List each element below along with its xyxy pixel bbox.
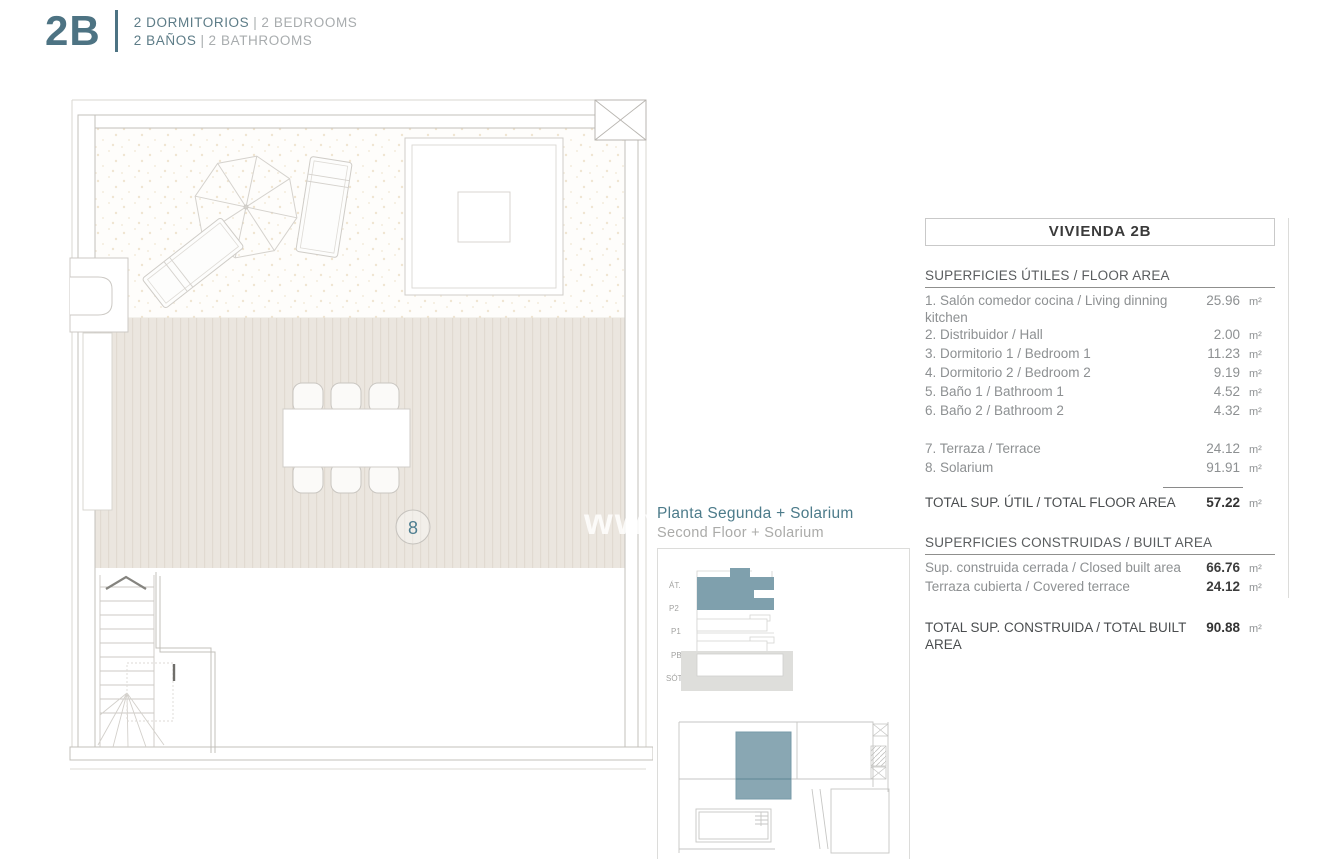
row-value: 4.32 bbox=[1188, 402, 1240, 419]
table-row: Sup. construida cerrada / Closed built a… bbox=[925, 559, 1275, 578]
row-value: 66.76 bbox=[1188, 559, 1240, 576]
building-section-diagram: ÁT. P2 P1 PB SÓT. bbox=[664, 567, 814, 702]
header-lines: 2 DORMITORIOS|2 BEDROOMS 2 BAÑOS|2 BATHR… bbox=[134, 15, 358, 48]
brochure-page: 2B 2 DORMITORIOS|2 BEDROOMS 2 BAÑOS|2 BA… bbox=[0, 0, 1320, 859]
top-wall bbox=[78, 115, 598, 128]
floor-label-atico: ÁT. bbox=[669, 581, 681, 590]
row-label: 3. Dormitorio 1 / Bedroom 1 bbox=[925, 345, 1188, 362]
floor-label-p1: P1 bbox=[671, 627, 681, 636]
total-built-row: TOTAL SUP. CONSTRUIDA / TOTAL BUILT AREA… bbox=[925, 619, 1275, 653]
lower-floors bbox=[697, 615, 774, 653]
bathrooms-line: 2 BAÑOS|2 BATHROOMS bbox=[134, 33, 358, 48]
table-row: 3. Dormitorio 1 / Bedroom 111.23m² bbox=[925, 345, 1275, 364]
row-unit: m² bbox=[1240, 294, 1275, 311]
bedrooms-en: 2 BEDROOMS bbox=[261, 15, 357, 30]
table-side-rule bbox=[1288, 218, 1289, 598]
built-area-header: SUPERFICIES CONSTRUIDAS / BUILT AREA bbox=[925, 535, 1275, 555]
row-unit: m² bbox=[1240, 404, 1275, 421]
row-label: 7. Terraza / Terrace bbox=[925, 440, 1188, 457]
bathrooms-es: 2 BAÑOS bbox=[134, 33, 197, 48]
floor-area-header: SUPERFICIES ÚTILES / FLOOR AREA bbox=[925, 268, 1275, 288]
separator: | bbox=[249, 15, 261, 30]
area-table: VIVIENDA 2B SUPERFICIES ÚTILES / FLOOR A… bbox=[925, 218, 1275, 653]
sink-fixture bbox=[70, 258, 128, 332]
row-label: 2. Distribuidor / Hall bbox=[925, 326, 1188, 343]
location-title-es: Planta Segunda + Solarium bbox=[657, 505, 854, 523]
row-unit: m² bbox=[1240, 347, 1275, 364]
header-divider bbox=[115, 10, 118, 52]
total-label: TOTAL SUP. CONSTRUIDA / TOTAL BUILT AREA bbox=[925, 619, 1188, 653]
total-label: TOTAL SUP. ÚTIL / TOTAL FLOOR AREA bbox=[925, 494, 1188, 511]
row-label: 1. Salón comedor cocina / Living dinning… bbox=[925, 292, 1188, 326]
total-value: 57.22 bbox=[1188, 494, 1240, 511]
row-value: 24.12 bbox=[1188, 578, 1240, 595]
table-row: 1. Salón comedor cocina / Living dinning… bbox=[925, 292, 1275, 326]
total-unit: m² bbox=[1240, 621, 1275, 638]
row-value: 91.91 bbox=[1188, 459, 1240, 476]
unit-type-header: 2B 2 DORMITORIOS|2 BEDROOMS 2 BAÑOS|2 BA… bbox=[45, 10, 357, 52]
adjacent-rooms bbox=[812, 789, 889, 853]
row-value: 11.23 bbox=[1188, 345, 1240, 362]
right-wall bbox=[625, 140, 638, 747]
table-row: 2. Distribuidor / Hall2.00m² bbox=[925, 326, 1275, 345]
room-number-badge: 8 bbox=[396, 510, 430, 544]
highlighted-unit bbox=[736, 732, 791, 799]
bedrooms-line: 2 DORMITORIOS|2 BEDROOMS bbox=[134, 15, 358, 30]
table-row: 6. Baño 2 / Bathroom 24.32m² bbox=[925, 402, 1275, 421]
total-floor-row: TOTAL SUP. ÚTIL / TOTAL FLOOR AREA57.22m… bbox=[925, 494, 1275, 513]
row-unit: m² bbox=[1240, 442, 1275, 459]
shaft-icon bbox=[595, 100, 646, 140]
terrace-rows: 7. Terraza / Terrace24.12m² 8. Solarium9… bbox=[925, 440, 1275, 478]
planter bbox=[83, 333, 112, 510]
row-label: 6. Baño 2 / Bathroom 2 bbox=[925, 402, 1188, 419]
table-row: 8. Solarium91.91m² bbox=[925, 459, 1275, 478]
table-row: 4. Dormitorio 2 / Bedroom 29.19m² bbox=[925, 364, 1275, 383]
row-label: 8. Solarium bbox=[925, 459, 1188, 476]
row-unit: m² bbox=[1240, 366, 1275, 383]
built-area-rows: Sup. construida cerrada / Closed built a… bbox=[925, 559, 1275, 597]
location-panel: ÁT. P2 P1 PB SÓT. bbox=[657, 548, 910, 859]
service-core bbox=[871, 724, 888, 779]
floor-plan-drawing: 8 bbox=[68, 97, 653, 777]
staircase-icon bbox=[98, 575, 173, 747]
row-value: 4.52 bbox=[1188, 383, 1240, 400]
bathrooms-en: 2 BATHROOMS bbox=[209, 33, 313, 48]
row-unit: m² bbox=[1240, 385, 1275, 402]
total-rule bbox=[1163, 487, 1243, 488]
row-value: 9.19 bbox=[1188, 364, 1240, 381]
basement bbox=[697, 654, 783, 676]
table-title: VIVIENDA 2B bbox=[925, 218, 1275, 246]
skylight bbox=[405, 138, 563, 295]
unit-type-logo: 2B bbox=[45, 10, 101, 52]
row-unit: m² bbox=[1240, 580, 1275, 597]
key-plan-diagram bbox=[660, 717, 900, 859]
table-row: 7. Terraza / Terrace24.12m² bbox=[925, 440, 1275, 459]
room-number-label: 8 bbox=[408, 518, 418, 538]
floor-label-p2: P2 bbox=[669, 604, 679, 613]
row-unit: m² bbox=[1240, 461, 1275, 478]
floor-area-rows: 1. Salón comedor cocina / Living dinning… bbox=[925, 292, 1275, 421]
row-label: 5. Baño 1 / Bathroom 1 bbox=[925, 383, 1188, 400]
row-label: Terraza cubierta / Covered terrace bbox=[925, 578, 1188, 595]
bottom-wall bbox=[70, 747, 653, 760]
row-label: Sup. construida cerrada / Closed built a… bbox=[925, 559, 1188, 576]
table-row: 5. Baño 1 / Bathroom 14.52m² bbox=[925, 383, 1275, 402]
separator: | bbox=[196, 33, 208, 48]
stair-wall bbox=[156, 572, 215, 753]
location-title-en: Second Floor + Solarium bbox=[657, 525, 824, 541]
table-row: Terraza cubierta / Covered terrace24.12m… bbox=[925, 578, 1275, 597]
pool bbox=[696, 809, 771, 842]
row-label: 4. Dormitorio 2 / Bedroom 2 bbox=[925, 364, 1188, 381]
floor-label-pb: PB bbox=[671, 651, 682, 660]
row-value: 2.00 bbox=[1188, 326, 1240, 343]
row-value: 24.12 bbox=[1188, 440, 1240, 457]
row-value: 25.96 bbox=[1188, 292, 1240, 309]
row-unit: m² bbox=[1240, 561, 1275, 578]
total-value: 90.88 bbox=[1188, 619, 1240, 636]
total-unit: m² bbox=[1240, 496, 1275, 513]
bedrooms-es: 2 DORMITORIOS bbox=[134, 15, 250, 30]
row-unit: m² bbox=[1240, 328, 1275, 345]
highlighted-floors bbox=[697, 568, 774, 610]
dining-table-icon bbox=[283, 409, 410, 467]
floor-plan: 8 www.imm bbox=[68, 97, 653, 777]
